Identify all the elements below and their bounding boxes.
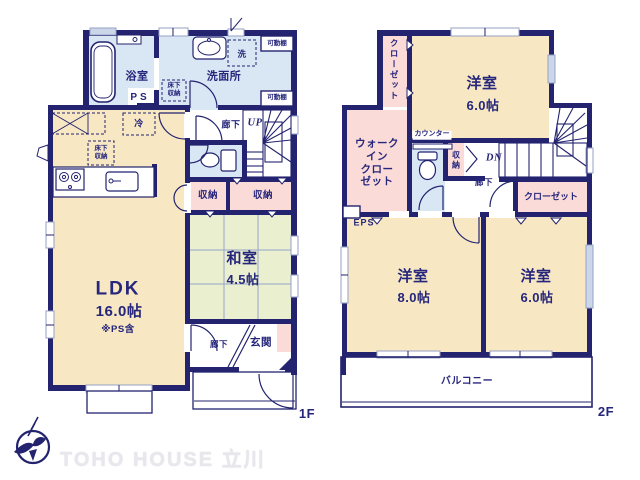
- label-floor2: 2F: [598, 404, 614, 420]
- toilet-tank-1f: [221, 150, 236, 171]
- label-hallway-2f: 廊下: [475, 177, 493, 187]
- label-washer: 洗: [237, 49, 246, 59]
- label-fridge: 冷: [134, 119, 144, 130]
- label-counter: カウンター: [413, 131, 452, 140]
- label-washitsu-size: 4.5帖: [226, 272, 259, 288]
- shoe-cabinet: [277, 324, 292, 352]
- label-eps: EPS: [353, 218, 374, 229]
- label-storage-2f: 収 納: [452, 150, 460, 170]
- label-washitsu: 和室: [226, 250, 257, 268]
- label-ldk: LDK: [95, 277, 140, 300]
- floorplan-drawing: [0, 0, 640, 480]
- room-ldk: [48, 105, 190, 391]
- label-dn: DN: [486, 153, 502, 166]
- label-shelf-top: 可動棚: [267, 40, 287, 48]
- label-storage-b: 収納: [253, 190, 273, 202]
- label-closet-mid: クローゼット: [524, 192, 578, 203]
- entrance-step: [87, 391, 152, 413]
- label-shelf-bottom: 可動棚: [267, 94, 287, 102]
- label-bedroom-right: 洋室: [520, 268, 551, 286]
- label-ps: PS: [130, 92, 149, 104]
- label-bedroom-left-size: 8.0帖: [397, 290, 430, 306]
- label-closet-top: クローゼット: [389, 39, 399, 102]
- floorplan-canvas: 浴室 PS 洗面所 洗 可動棚 可動棚 床下 収納 冷 床下 収納 廊下 UP …: [0, 0, 640, 480]
- label-wic: ウォーク イン クロー ゼット: [355, 137, 399, 188]
- brand-logo-text: TOHO HOUSE 立川: [60, 443, 266, 472]
- floor1-plan: [37, 18, 298, 413]
- label-bedroom-right-size: 6.0帖: [520, 290, 553, 306]
- compass-icon: [14, 417, 49, 463]
- label-ldk-note: ※PS含: [101, 324, 134, 336]
- label-floor1: 1F: [299, 406, 315, 422]
- toilet-bowl-2f: [420, 161, 436, 180]
- floor2-openings: [389, 211, 515, 218]
- label-storage-a: 収納: [198, 190, 218, 202]
- label-entry-hall: 廊下: [210, 339, 228, 349]
- porch: [193, 372, 296, 409]
- label-washroom: 洗面所: [207, 70, 242, 83]
- label-bedroom-top: 洋室: [466, 75, 497, 93]
- bay-window-mark: [37, 145, 48, 161]
- label-hallway-1f: 廊下: [221, 120, 240, 131]
- label-bathroom: 浴室: [126, 70, 149, 83]
- toilet-bowl-1f: [201, 153, 219, 167]
- label-entrance: 玄関: [250, 337, 272, 350]
- label-balcony: バルコニー: [441, 376, 493, 388]
- label-bedroom-top-size: 6.0帖: [466, 98, 499, 114]
- label-underfloor-washroom: 床下 収納: [168, 82, 181, 98]
- eps-box: [343, 206, 360, 218]
- label-ldk-size: 16.0帖: [96, 303, 143, 321]
- label-bedroom-left: 洋室: [397, 268, 428, 286]
- toilet-tank-2f: [418, 152, 437, 160]
- counter-2f: [413, 144, 452, 149]
- label-up: UP: [248, 118, 263, 131]
- label-underfloor-kitchen: 床下 収納: [95, 145, 108, 161]
